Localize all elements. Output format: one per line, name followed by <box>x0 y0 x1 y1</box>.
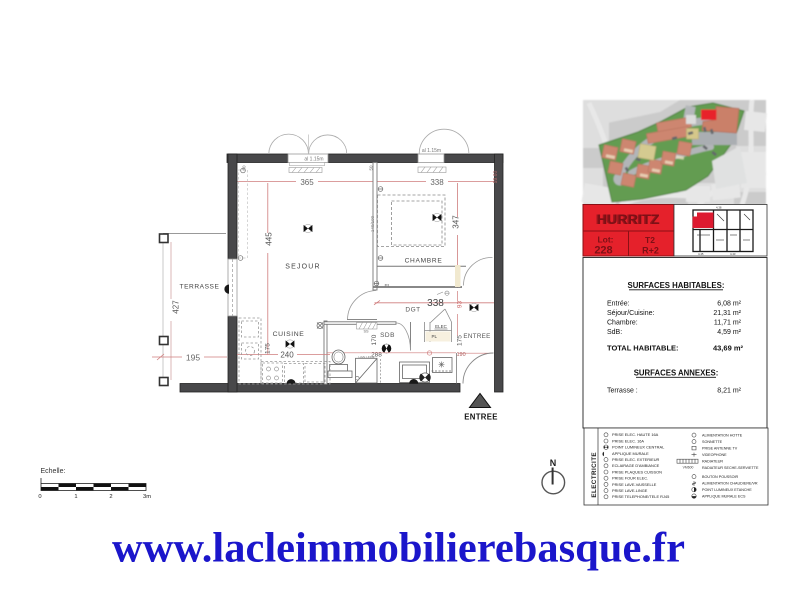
svg-text:POINT LUMINEUX ETANCHE: POINT LUMINEUX ETANCHE <box>702 488 752 492</box>
svg-text:CHAMBRE: CHAMBRE <box>405 258 443 265</box>
svg-text:1: 1 <box>74 494 77 500</box>
svg-text:2: 2 <box>109 494 112 500</box>
svg-text:PRISE ELEC. EXTERIEUR: PRISE ELEC. EXTERIEUR <box>612 457 660 462</box>
svg-text:4.38: 4.38 <box>716 206 722 210</box>
svg-text:99.60: 99.60 <box>493 171 499 184</box>
svg-text:195: 195 <box>186 353 200 363</box>
svg-text:POINT LUMINEUX CENTRAL: POINT LUMINEUX CENTRAL <box>612 445 665 450</box>
svg-text:4.45: 4.45 <box>698 252 704 256</box>
svg-text:R+2: R+2 <box>642 246 659 256</box>
svg-text:Terrasse :: Terrasse : <box>607 388 638 395</box>
svg-text:TERRASSE: TERRASSE <box>180 284 220 291</box>
svg-text:PRISE LAVE-VAISSELLE: PRISE LAVE-VAISSELLE <box>612 482 657 487</box>
svg-text:4,59 m²: 4,59 m² <box>717 329 741 336</box>
svg-text:N: N <box>550 458 557 468</box>
svg-text:SURFACES HABITABLES:: SURFACES HABITABLES: <box>628 281 725 290</box>
svg-text:BOUTON POUSSOIR: BOUTON POUSSOIR <box>702 475 739 479</box>
svg-text:al 1.15m: al 1.15m <box>422 148 441 154</box>
svg-text:6,08 m²: 6,08 m² <box>717 301 741 308</box>
svg-text:Echelle:: Echelle: <box>41 468 66 475</box>
svg-text:RADIATEUR SECHE-SERVIETTE: RADIATEUR SECHE-SERVIETTE <box>702 466 759 470</box>
svg-text:338: 338 <box>430 178 444 187</box>
svg-text:SdB:: SdB: <box>607 329 622 336</box>
svg-text:PRISE LAVE-LINGE: PRISE LAVE-LINGE <box>612 488 648 493</box>
svg-text:3m: 3m <box>143 494 151 500</box>
svg-text:PRISE FOUR ELEC.: PRISE FOUR ELEC. <box>612 476 648 481</box>
svg-text:347: 347 <box>452 215 461 229</box>
svg-text:APPLIQUE MURALE: APPLIQUE MURALE <box>612 451 649 456</box>
svg-text:93: 93 <box>457 301 464 309</box>
svg-text:APPLIQUE MURALE ECS: APPLIQUE MURALE ECS <box>702 495 746 499</box>
svg-text:ENTREE: ENTREE <box>464 413 497 422</box>
svg-text:LAVE LINGE: LAVE LINGE <box>358 355 374 359</box>
svg-text:ELEC: ELEC <box>435 324 448 329</box>
svg-text:PRISE TELEPHONE/TELE RJ45: PRISE TELEPHONE/TELE RJ45 <box>612 494 669 499</box>
svg-text:ALIMENTATION HOTTE: ALIMENTATION HOTTE <box>702 434 743 438</box>
svg-text:338: 338 <box>427 298 444 309</box>
svg-text:170: 170 <box>371 334 378 345</box>
svg-text:PRISE ELEC. 16A: PRISE ELEC. 16A <box>612 438 644 443</box>
svg-text:ALIMENTATION CHAUDIERE/VR: ALIMENTATION CHAUDIERE/VR <box>702 482 758 486</box>
svg-text:TOTAL HABITABLE:: TOTAL HABITABLE: <box>607 344 679 353</box>
svg-text:228: 228 <box>594 245 612 257</box>
svg-text:HURRITZ: HURRITZ <box>596 211 659 227</box>
svg-text:Chambre:: Chambre: <box>607 320 638 327</box>
svg-text:Lot:: Lot: <box>597 235 613 245</box>
svg-text:PL: PL <box>432 334 438 339</box>
svg-text:SS: SS <box>363 330 369 334</box>
svg-text:21,31 m²: 21,31 m² <box>713 310 741 317</box>
svg-text:RADIATEUR: RADIATEUR <box>702 460 723 464</box>
svg-text:ELECTRICITE: ELECTRICITE <box>591 452 598 498</box>
svg-text:PRISE PLAQUES CUISSON: PRISE PLAQUES CUISSON <box>612 469 662 474</box>
svg-text:240: 240 <box>280 351 294 360</box>
svg-text:190: 190 <box>457 352 466 358</box>
svg-text:175: 175 <box>457 335 464 346</box>
svg-text:8,21 m²: 8,21 m² <box>717 388 741 395</box>
svg-text:ENTREE: ENTREE <box>463 333 490 340</box>
svg-text:PL: PL <box>385 283 391 289</box>
svg-text:SDB: SDB <box>380 332 395 339</box>
svg-text:4.43: 4.43 <box>730 252 736 256</box>
svg-text:50: 50 <box>242 165 247 171</box>
svg-text:VIDEOPHONE: VIDEOPHONE <box>702 453 727 457</box>
svg-text:427: 427 <box>172 300 181 314</box>
svg-text:43,69 m²: 43,69 m² <box>713 344 744 353</box>
svg-text:PRISE ANTENNE TV: PRISE ANTENNE TV <box>702 447 738 451</box>
svg-text:T2: T2 <box>645 235 655 245</box>
svg-text:DGT: DGT <box>405 307 420 314</box>
svg-text:140/190: 140/190 <box>370 215 375 232</box>
svg-text:CUISINE: CUISINE <box>273 331 305 338</box>
svg-text:SURFACES ANNEXES:: SURFACES ANNEXES: <box>634 369 719 378</box>
svg-text:al 1.15m: al 1.15m <box>304 157 323 163</box>
svg-text:SEJOUR: SEJOUR <box>285 264 321 271</box>
svg-text:ECLAIRAGE D'AMBIANCE: ECLAIRAGE D'AMBIANCE <box>612 463 660 468</box>
svg-text:www.lacleimmobilierebasque.fr: www.lacleimmobilierebasque.fr <box>112 525 685 572</box>
svg-text:Entrée:: Entrée: <box>607 301 630 308</box>
svg-text:11,71 m²: 11,71 m² <box>714 320 742 327</box>
svg-text:175: 175 <box>265 343 272 354</box>
svg-text:0: 0 <box>38 494 41 500</box>
svg-text:Séjour/Cuisine:: Séjour/Cuisine: <box>607 310 655 317</box>
svg-text:50: 50 <box>369 165 374 171</box>
svg-text:SONNETTE: SONNETTE <box>702 440 723 444</box>
svg-text:VM600: VM600 <box>683 466 694 470</box>
svg-text:365: 365 <box>300 178 314 187</box>
svg-text:445: 445 <box>265 232 274 246</box>
svg-text:PRISE ELEC. HAUTE 16A: PRISE ELEC. HAUTE 16A <box>612 432 659 437</box>
